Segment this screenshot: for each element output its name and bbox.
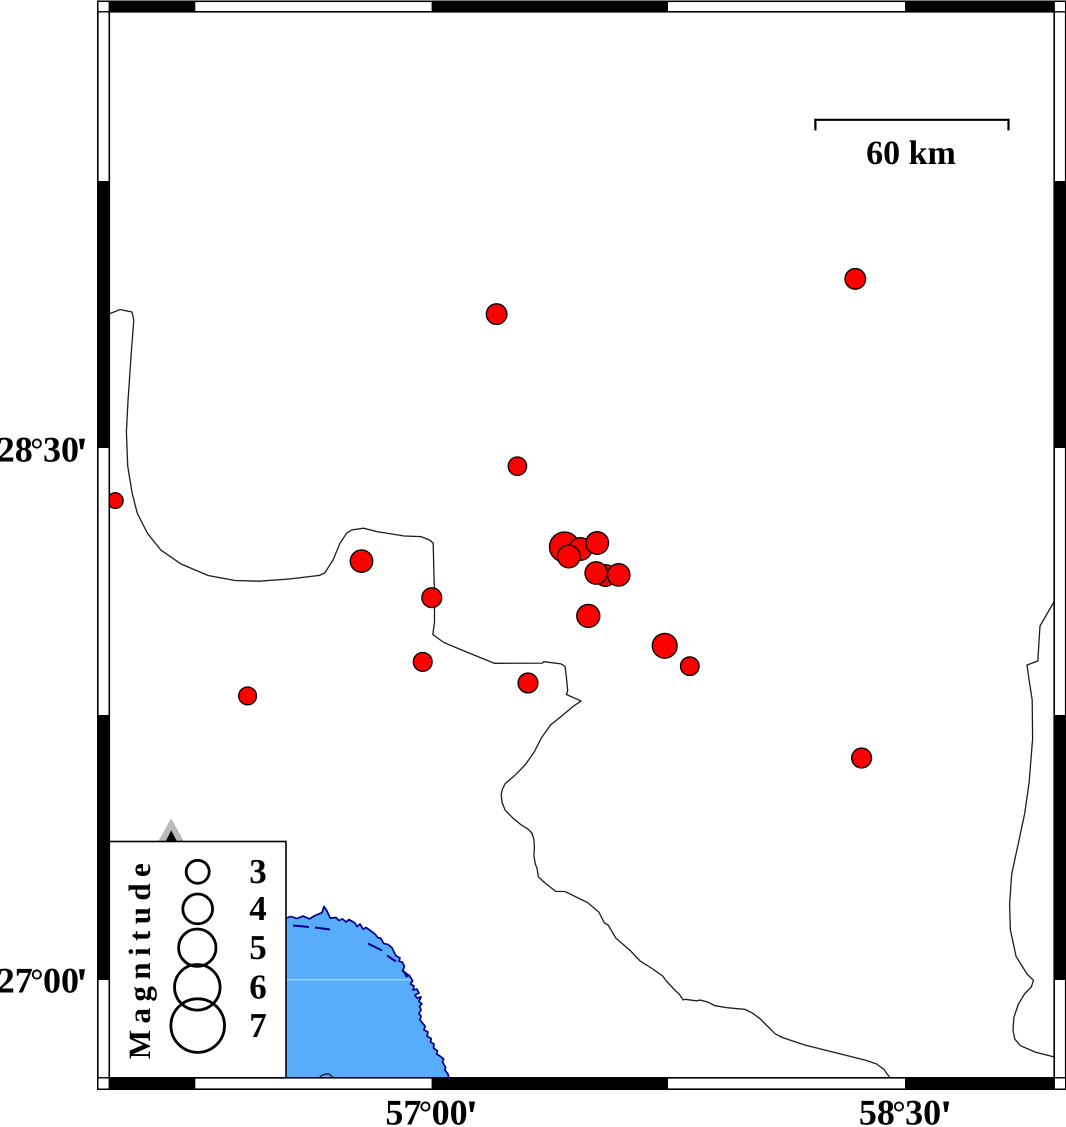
- svg-text:3: 3: [249, 852, 267, 891]
- svg-text:27°00: 27°00: [0, 961, 79, 1001]
- svg-text:Magnitude: Magnitude: [122, 857, 157, 1059]
- svg-text:28°30: 28°30: [0, 430, 79, 470]
- svg-text:60 km: 60 km: [866, 135, 956, 172]
- svg-text:4: 4: [249, 889, 267, 928]
- svg-text:6: 6: [249, 968, 267, 1007]
- svg-text:7: 7: [249, 1006, 267, 1045]
- svg-text:58°30: 58°30: [859, 1093, 941, 1127]
- svg-text:57°00: 57°00: [385, 1093, 467, 1127]
- svg-text:5: 5: [249, 928, 267, 967]
